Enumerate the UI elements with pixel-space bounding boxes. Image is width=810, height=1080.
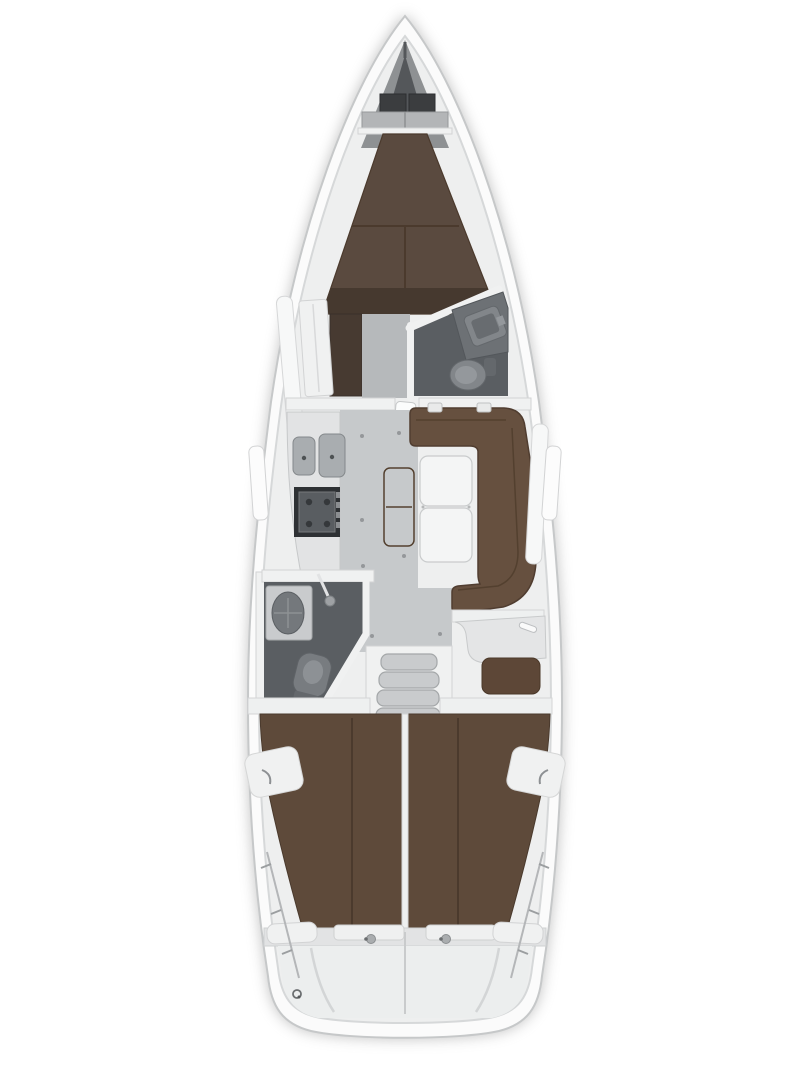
aft-headboard-starboard bbox=[440, 698, 552, 714]
floor-screw-dot bbox=[361, 564, 365, 568]
stove-burner bbox=[324, 521, 330, 527]
boat-floorplan bbox=[0, 0, 810, 1080]
nav-seat bbox=[482, 658, 540, 694]
stove-knob bbox=[336, 502, 340, 508]
fore-cabin-floor bbox=[362, 314, 410, 398]
stove-burner bbox=[306, 499, 312, 505]
floor-screw-dot bbox=[438, 632, 442, 636]
sink-drain bbox=[330, 455, 334, 459]
fore-dresser bbox=[330, 314, 362, 396]
table-hinge bbox=[468, 506, 471, 509]
floor-screw-dot bbox=[370, 634, 374, 638]
sink-drain bbox=[302, 456, 306, 460]
salon-table-fwd-leaf bbox=[420, 456, 472, 506]
bulkhead-port bbox=[286, 398, 395, 410]
shower-head bbox=[325, 596, 335, 606]
aft-headboard-port bbox=[248, 698, 370, 714]
transom-latch-plate bbox=[426, 925, 496, 940]
stove-burner bbox=[306, 521, 312, 527]
table-hinge bbox=[422, 506, 425, 509]
stove-knob bbox=[336, 512, 340, 518]
companionway-step bbox=[379, 672, 439, 688]
transom-latch bbox=[442, 935, 451, 944]
windlass-box-left bbox=[380, 94, 406, 112]
center-divider bbox=[402, 714, 408, 932]
transom-cap-port bbox=[267, 922, 318, 945]
floor-screw-dot bbox=[360, 434, 364, 438]
companionway-step bbox=[377, 690, 439, 706]
transom-latch-pin bbox=[439, 937, 443, 941]
transom-latch bbox=[367, 935, 376, 944]
settee-latch bbox=[477, 403, 491, 412]
windlass-box-right bbox=[409, 94, 435, 112]
companionway-step bbox=[381, 654, 437, 670]
stern-ring-pin bbox=[298, 996, 301, 999]
floor-screw-dot bbox=[397, 431, 401, 435]
settee-latch bbox=[428, 403, 442, 412]
floor-screw-dot bbox=[360, 518, 364, 522]
boat-floorplan-page bbox=[0, 0, 810, 1080]
stove-burner bbox=[324, 499, 330, 505]
salon-table-aft-leaf bbox=[420, 508, 472, 562]
stove-knob bbox=[336, 522, 340, 528]
bow-bulkhead bbox=[358, 128, 452, 134]
transom-latch-pin bbox=[364, 937, 368, 941]
floor-screw-dot bbox=[402, 554, 406, 558]
stove-knob bbox=[336, 492, 340, 498]
galley-stove-top bbox=[299, 492, 335, 532]
transom-cap-starboard bbox=[493, 922, 544, 945]
